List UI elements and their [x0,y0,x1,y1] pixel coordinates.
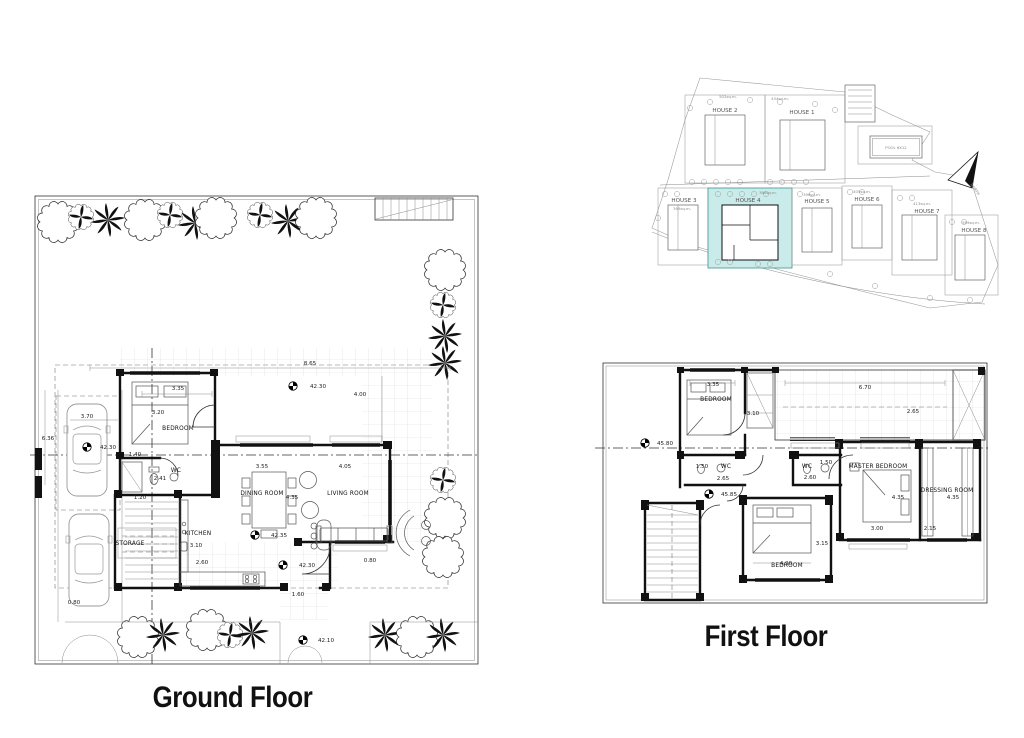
area-label: 396sq.m. [803,192,821,197]
house-label: HOUSE 3 [671,198,697,204]
dim-label: 8.65 [304,361,317,367]
dim-label: 1.20 [134,495,147,501]
house-label: HOUSE 5 [804,199,830,205]
ground-floor-plan: BEDROOM WC STORAGE KITCHEN DINING ROOM L… [30,190,485,670]
room-label: DRESSING ROOM [921,488,974,494]
room-label: MASTER BEDROOM [849,464,908,470]
car-icon [66,514,112,606]
room-label: LIVING ROOM [327,491,369,497]
dim-label: 4.05 [339,464,352,470]
room-label: WC [802,464,812,470]
dim-label: 3.70 [81,414,94,420]
closet [747,373,773,428]
first-floor-title: First Floor [680,620,852,654]
level-label: 42.30 [299,563,315,569]
dim-label: 4.35 [947,495,960,501]
dim-label: 4.35 [286,495,299,501]
dim-label: 0.80 [364,558,377,564]
level-label: 45.80 [657,441,673,447]
driveway [35,390,122,622]
dim-label: 1.50 [696,464,709,470]
level-marker-icon [289,382,297,390]
dining-table [242,472,296,538]
site-boundary [652,78,998,308]
dim-label: 1.40 [129,452,142,458]
house-label: HOUSE 4 [735,198,761,204]
dim-label: 0.80 [68,600,81,606]
dim-label: 1.50 [820,460,833,466]
dim-label: 3.10 [190,543,203,549]
dim-label: 2.65 [907,409,920,415]
level-label: 45.85 [721,492,737,498]
level-marker-icon [251,531,259,539]
master-bed [850,463,911,522]
room-label: BEDROOM [162,426,194,432]
first-floor-plan: BEDROOM WC WC MASTER BEDROOM DRESSING RO… [595,355,995,615]
site-road [660,176,930,185]
dim-label: 4.35 [892,495,905,501]
level-marker-icon [299,636,307,644]
house-label: HOUSE 7 [914,209,940,215]
dim-label: 6.36 [42,436,55,442]
ground-floor-title: Ground Floor [136,681,330,715]
level-label: 42.30 [100,445,116,451]
level-markers [83,382,307,644]
roof-terrace [775,370,985,440]
room-label: BEDROOM [700,397,732,403]
area-label: 405sq.m. [853,189,871,194]
room-label: WC [171,468,181,474]
dim-label: 1.60 [292,592,305,598]
dim-label: 3.10 [747,411,760,417]
bed [687,380,731,435]
dim-label: 3.00 [871,526,884,532]
room-label: DINING ROOM [240,491,283,497]
area-label: 434sq.m. [771,96,789,101]
level-marker-icon [279,561,287,569]
dim-label: 3.20 [152,410,165,416]
driveway-gate [62,635,118,663]
level-label: 42.30 [310,384,326,390]
bed [753,505,811,553]
pool-area: POOL 6X12 [845,85,932,164]
level-marker-icon [83,443,91,451]
stair [647,505,698,598]
dim-label: 2.65 [717,476,730,482]
wc-fixtures [122,462,178,492]
level-marker-icon [641,439,649,447]
house-label: HOUSE 8 [961,228,987,234]
dim-label: 3.15 [816,541,829,547]
house4-footprint [722,205,778,260]
dim-label: 2.60 [804,475,817,481]
external-stair [375,198,453,220]
dim-label: 2.41 [154,476,167,482]
room-label: KITCHEN [185,531,212,537]
room-label: WC [721,464,731,470]
level-label: 42.10 [318,638,334,644]
dim-label: 3.55 [256,464,269,470]
architectural-sheet: BEDROOM WC STORAGE KITCHEN DINING ROOM L… [0,0,1024,738]
area-label: 395sq.m. [673,206,691,211]
dim-label: 2.60 [196,560,209,566]
dim-label: 4.00 [354,392,367,398]
north-arrow-icon: NORTH [948,152,981,196]
pool-label: POOL 6X12 [885,145,907,150]
house-label: HOUSE 6 [854,197,880,203]
area-label: 502sq.m. [719,94,737,99]
level-marker-icon [705,490,713,498]
site-plan: POOL 6X12 NORTH HOUSE 1 434sq.m. HOUSE 2… [630,60,1020,320]
room-label: STORAGE [116,541,145,547]
area-label: 386sq.m. [759,190,777,195]
dim-label: 6.70 [859,385,872,391]
dim-label: 2.15 [924,526,937,532]
site-lots [658,95,998,295]
dim-label: 3.35 [707,382,720,388]
house-label: HOUSE 2 [712,108,737,114]
dim-label: 3.35 [172,386,185,392]
house-label: HOUSE 1 [789,110,815,116]
dim-label: 4.90 [780,561,793,567]
level-label: 42.35 [271,533,287,539]
area-label: 569sq.m. [962,220,980,225]
area-label: 413sq.m. [913,201,931,206]
